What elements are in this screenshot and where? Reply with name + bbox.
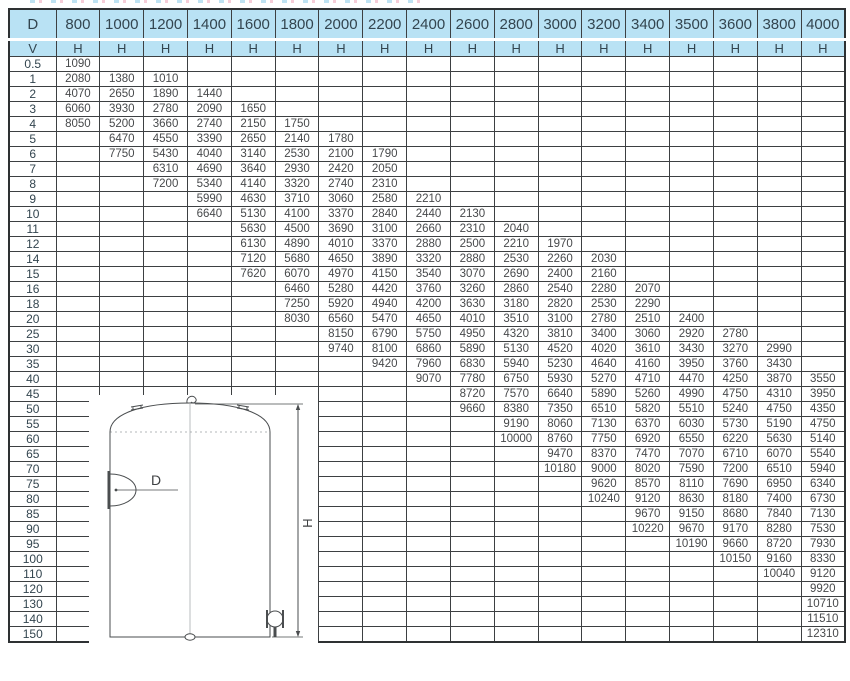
empty-cell bbox=[450, 147, 494, 162]
empty-cell bbox=[713, 87, 757, 102]
empty-cell bbox=[757, 327, 801, 342]
top-nozzle-left-icon bbox=[131, 405, 143, 410]
volume-label-cell: 1 bbox=[9, 72, 56, 87]
diameter-header-cell: 800 bbox=[56, 9, 100, 40]
height-value-cell: 6060 bbox=[56, 102, 100, 117]
empty-cell bbox=[670, 567, 714, 582]
height-value-cell: 7120 bbox=[231, 252, 275, 267]
empty-cell bbox=[538, 627, 582, 643]
height-value-cell: 4150 bbox=[363, 267, 407, 282]
diameter-header-cell: 4000 bbox=[801, 9, 845, 40]
volume-label-cell: 7 bbox=[9, 162, 56, 177]
height-value-cell: 6460 bbox=[275, 282, 319, 297]
volume-label-cell: 100 bbox=[9, 552, 56, 567]
empty-cell bbox=[670, 87, 714, 102]
height-value-cell: 3630 bbox=[450, 297, 494, 312]
empty-cell bbox=[538, 612, 582, 627]
table-row: 1261304890401033702880250022101970 bbox=[9, 237, 845, 252]
height-value-cell: 3810 bbox=[538, 327, 582, 342]
empty-cell bbox=[757, 207, 801, 222]
height-value-cell: 7400 bbox=[757, 492, 801, 507]
height-value-cell: 4940 bbox=[363, 297, 407, 312]
volume-label-cell: 50 bbox=[9, 402, 56, 417]
height-value-cell: 2030 bbox=[582, 252, 626, 267]
empty-cell bbox=[801, 282, 845, 297]
height-value-cell: 8030 bbox=[275, 312, 319, 327]
height-value-cell: 3610 bbox=[626, 342, 670, 357]
empty-cell bbox=[450, 177, 494, 192]
height-value-cell: 6830 bbox=[450, 357, 494, 372]
height-value-cell: 5190 bbox=[757, 417, 801, 432]
empty-cell bbox=[275, 102, 319, 117]
empty-cell bbox=[144, 252, 188, 267]
empty-cell bbox=[757, 102, 801, 117]
empty-cell bbox=[670, 162, 714, 177]
height-value-cell: 7530 bbox=[801, 522, 845, 537]
volume-label-cell: 110 bbox=[9, 567, 56, 582]
diameter-header-cell: 2400 bbox=[407, 9, 451, 40]
volume-label-cell: 2 bbox=[9, 87, 56, 102]
empty-cell bbox=[450, 582, 494, 597]
empty-cell bbox=[582, 57, 626, 72]
empty-cell bbox=[494, 87, 538, 102]
empty-cell bbox=[801, 207, 845, 222]
empty-cell bbox=[670, 552, 714, 567]
empty-cell bbox=[626, 597, 670, 612]
empty-cell bbox=[494, 627, 538, 643]
empty-cell bbox=[231, 297, 275, 312]
diameter-header-cell: 3800 bbox=[757, 9, 801, 40]
height-value-cell: 1750 bbox=[275, 117, 319, 132]
empty-cell bbox=[407, 477, 451, 492]
height-value-cell: 9120 bbox=[626, 492, 670, 507]
diameter-header-cell: 3000 bbox=[538, 9, 582, 40]
empty-cell bbox=[275, 357, 319, 372]
diameter-header-row: D800100012001400160018002000220024002600… bbox=[9, 9, 845, 40]
height-value-cell: 4970 bbox=[319, 267, 363, 282]
height-value-cell: 2530 bbox=[275, 147, 319, 162]
empty-cell bbox=[363, 537, 407, 552]
empty-cell bbox=[494, 522, 538, 537]
empty-cell bbox=[100, 342, 144, 357]
empty-cell bbox=[100, 192, 144, 207]
empty-cell bbox=[713, 582, 757, 597]
height-value-cell: 4350 bbox=[801, 402, 845, 417]
height-value-cell: 3060 bbox=[626, 327, 670, 342]
height-value-cell: 8110 bbox=[670, 477, 714, 492]
empty-cell bbox=[450, 477, 494, 492]
table-row: 15762060704970415035403070269024002160 bbox=[9, 267, 845, 282]
height-value-cell: 10040 bbox=[757, 567, 801, 582]
empty-cell bbox=[100, 222, 144, 237]
volume-label-cell: 45 bbox=[9, 387, 56, 402]
empty-cell bbox=[363, 582, 407, 597]
top-nozzle-right-icon bbox=[237, 405, 249, 410]
height-value-cell: 2580 bbox=[363, 192, 407, 207]
volume-label-cell: 65 bbox=[9, 447, 56, 462]
empty-cell bbox=[801, 357, 845, 372]
empty-cell bbox=[100, 177, 144, 192]
empty-cell bbox=[494, 507, 538, 522]
empty-cell bbox=[319, 537, 363, 552]
empty-cell bbox=[626, 222, 670, 237]
empty-cell bbox=[626, 612, 670, 627]
height-value-cell: 2310 bbox=[450, 222, 494, 237]
height-value-cell: 3930 bbox=[100, 102, 144, 117]
height-value-cell: 2740 bbox=[187, 117, 231, 132]
height-value-cell: 6730 bbox=[801, 492, 845, 507]
height-value-cell: 5200 bbox=[100, 117, 144, 132]
empty-cell bbox=[187, 72, 231, 87]
empty-cell bbox=[582, 87, 626, 102]
table-row: 360603930278020901650 bbox=[9, 102, 845, 117]
height-value-cell: 6130 bbox=[231, 237, 275, 252]
empty-cell bbox=[319, 87, 363, 102]
empty-cell bbox=[363, 612, 407, 627]
table-row: 106640513041003370284024402130 bbox=[9, 207, 845, 222]
h-unit-cell: H bbox=[187, 40, 231, 57]
empty-cell bbox=[450, 72, 494, 87]
empty-cell bbox=[582, 552, 626, 567]
empty-cell bbox=[713, 207, 757, 222]
empty-cell bbox=[582, 612, 626, 627]
height-value-cell: 2860 bbox=[494, 282, 538, 297]
volume-label-cell: 11 bbox=[9, 222, 56, 237]
tank-drawing-inset: D H bbox=[89, 395, 318, 656]
volume-label-cell: 40 bbox=[9, 372, 56, 387]
empty-cell bbox=[757, 297, 801, 312]
empty-cell bbox=[538, 567, 582, 582]
height-value-cell: 5140 bbox=[801, 432, 845, 447]
height-value-cell: 5270 bbox=[582, 372, 626, 387]
empty-cell bbox=[801, 87, 845, 102]
empty-cell bbox=[319, 432, 363, 447]
volume-label-cell: 130 bbox=[9, 597, 56, 612]
height-value-cell: 4010 bbox=[319, 237, 363, 252]
h-unit-cell: H bbox=[450, 40, 494, 57]
empty-cell bbox=[100, 312, 144, 327]
height-value-cell: 5730 bbox=[713, 417, 757, 432]
empty-cell bbox=[363, 462, 407, 477]
empty-cell bbox=[582, 567, 626, 582]
empty-cell bbox=[494, 612, 538, 627]
empty-cell bbox=[363, 567, 407, 582]
empty-cell bbox=[407, 117, 451, 132]
empty-cell bbox=[757, 627, 801, 643]
table-row: 9599046303710306025802210 bbox=[9, 192, 845, 207]
volume-label-cell: 10 bbox=[9, 207, 56, 222]
height-value-cell: 1790 bbox=[363, 147, 407, 162]
empty-cell bbox=[582, 162, 626, 177]
h-unit-cell: H bbox=[319, 40, 363, 57]
height-value-cell: 7620 bbox=[231, 267, 275, 282]
empty-cell bbox=[626, 192, 670, 207]
height-value-cell: 10000 bbox=[494, 432, 538, 447]
height-value-cell: 9000 bbox=[582, 462, 626, 477]
height-value-cell: 2820 bbox=[538, 297, 582, 312]
volume-label-cell: 25 bbox=[9, 327, 56, 342]
volume-label-cell: 140 bbox=[9, 612, 56, 627]
empty-cell bbox=[363, 132, 407, 147]
empty-cell bbox=[231, 342, 275, 357]
h-unit-cell: H bbox=[231, 40, 275, 57]
height-value-cell: 3550 bbox=[801, 372, 845, 387]
height-value-cell: 2530 bbox=[494, 252, 538, 267]
empty-cell bbox=[538, 597, 582, 612]
volume-label-cell: 3 bbox=[9, 102, 56, 117]
empty-cell bbox=[538, 492, 582, 507]
empty-cell bbox=[363, 597, 407, 612]
empty-cell bbox=[363, 387, 407, 402]
height-value-cell: 3320 bbox=[275, 177, 319, 192]
table-row: 24070265018901440 bbox=[9, 87, 845, 102]
empty-cell bbox=[407, 567, 451, 582]
empty-cell bbox=[757, 282, 801, 297]
height-value-cell: 10240 bbox=[582, 492, 626, 507]
empty-cell bbox=[319, 507, 363, 522]
empty-cell bbox=[494, 447, 538, 462]
height-value-cell: 7200 bbox=[713, 462, 757, 477]
empty-cell bbox=[582, 147, 626, 162]
empty-cell bbox=[450, 567, 494, 582]
height-value-cell: 7840 bbox=[757, 507, 801, 522]
table-row: 3097408100686058905130452040203610343032… bbox=[9, 342, 845, 357]
height-value-cell: 6790 bbox=[363, 327, 407, 342]
empty-cell bbox=[407, 102, 451, 117]
empty-cell bbox=[319, 387, 363, 402]
height-value-cell: 4630 bbox=[231, 192, 275, 207]
empty-cell bbox=[582, 597, 626, 612]
empty-cell bbox=[713, 567, 757, 582]
height-value-cell: 2880 bbox=[450, 252, 494, 267]
empty-cell bbox=[582, 582, 626, 597]
empty-cell bbox=[713, 237, 757, 252]
side-valve bbox=[267, 611, 283, 627]
diameter-header-cell: 3600 bbox=[713, 9, 757, 40]
empty-cell bbox=[231, 72, 275, 87]
empty-cell bbox=[538, 582, 582, 597]
height-value-cell: 6750 bbox=[494, 372, 538, 387]
empty-cell bbox=[319, 417, 363, 432]
empty-cell bbox=[407, 492, 451, 507]
empty-cell bbox=[626, 177, 670, 192]
empty-cell bbox=[670, 282, 714, 297]
empty-cell bbox=[801, 177, 845, 192]
empty-cell bbox=[801, 297, 845, 312]
height-value-cell: 9660 bbox=[450, 402, 494, 417]
empty-cell bbox=[407, 147, 451, 162]
height-value-cell: 2310 bbox=[363, 177, 407, 192]
height-value-cell: 1650 bbox=[231, 102, 275, 117]
height-value-cell: 2130 bbox=[450, 207, 494, 222]
diameter-header-cell: 3200 bbox=[582, 9, 626, 40]
empty-cell bbox=[100, 282, 144, 297]
height-value-cell: 8150 bbox=[319, 327, 363, 342]
empty-cell bbox=[319, 72, 363, 87]
empty-cell bbox=[713, 177, 757, 192]
empty-cell bbox=[801, 342, 845, 357]
height-value-cell: 2530 bbox=[582, 297, 626, 312]
empty-cell bbox=[187, 312, 231, 327]
empty-cell bbox=[494, 492, 538, 507]
empty-cell bbox=[538, 117, 582, 132]
h-unit-cell: H bbox=[144, 40, 188, 57]
height-value-cell: 9670 bbox=[670, 522, 714, 537]
height-value-cell: 5890 bbox=[450, 342, 494, 357]
empty-cell bbox=[231, 87, 275, 102]
height-value-cell: 5130 bbox=[231, 207, 275, 222]
empty-cell bbox=[56, 282, 100, 297]
empty-cell bbox=[801, 252, 845, 267]
empty-cell bbox=[275, 57, 319, 72]
volume-label-cell: 8 bbox=[9, 177, 56, 192]
height-value-cell: 2260 bbox=[538, 252, 582, 267]
empty-cell bbox=[626, 582, 670, 597]
empty-cell bbox=[713, 132, 757, 147]
height-value-cell: 6860 bbox=[407, 342, 451, 357]
height-value-cell: 1010 bbox=[144, 72, 188, 87]
empty-cell bbox=[231, 57, 275, 72]
empty-cell bbox=[538, 477, 582, 492]
empty-cell bbox=[407, 57, 451, 72]
empty-cell bbox=[801, 162, 845, 177]
empty-cell bbox=[363, 432, 407, 447]
empty-cell bbox=[407, 87, 451, 102]
height-value-cell: 3660 bbox=[144, 117, 188, 132]
height-value-cell: 4750 bbox=[757, 402, 801, 417]
empty-cell bbox=[363, 627, 407, 643]
empty-cell bbox=[582, 522, 626, 537]
table-row: 4090707780675059305270471044704250387035… bbox=[9, 372, 845, 387]
empty-cell bbox=[626, 207, 670, 222]
cropped-title-remnant bbox=[30, 0, 422, 3]
height-value-cell: 5430 bbox=[144, 147, 188, 162]
empty-cell bbox=[538, 192, 582, 207]
diameter-header-cell: 1800 bbox=[275, 9, 319, 40]
empty-cell bbox=[319, 582, 363, 597]
height-value-cell: 3950 bbox=[801, 387, 845, 402]
empty-cell bbox=[538, 162, 582, 177]
height-value-cell: 4310 bbox=[757, 387, 801, 402]
empty-cell bbox=[670, 102, 714, 117]
empty-cell bbox=[450, 57, 494, 72]
height-value-cell: 9420 bbox=[363, 357, 407, 372]
empty-cell bbox=[582, 102, 626, 117]
empty-cell bbox=[187, 327, 231, 342]
empty-cell bbox=[56, 252, 100, 267]
empty-cell bbox=[538, 207, 582, 222]
height-value-cell: 4690 bbox=[187, 162, 231, 177]
empty-cell bbox=[231, 327, 275, 342]
empty-cell bbox=[450, 117, 494, 132]
height-value-cell: 5890 bbox=[582, 387, 626, 402]
height-value-cell: 2780 bbox=[144, 102, 188, 117]
empty-cell bbox=[144, 327, 188, 342]
h-unit-cell: H bbox=[713, 40, 757, 57]
height-value-cell: 8330 bbox=[801, 552, 845, 567]
height-value-cell: 6070 bbox=[275, 267, 319, 282]
empty-cell bbox=[231, 357, 275, 372]
empty-cell bbox=[363, 372, 407, 387]
empty-cell bbox=[626, 87, 670, 102]
volume-label-cell: 95 bbox=[9, 537, 56, 552]
empty-cell bbox=[319, 402, 363, 417]
empty-cell bbox=[450, 102, 494, 117]
empty-cell bbox=[757, 57, 801, 72]
empty-cell bbox=[100, 267, 144, 282]
height-value-cell: 2050 bbox=[363, 162, 407, 177]
empty-cell bbox=[713, 267, 757, 282]
height-value-cell: 6560 bbox=[319, 312, 363, 327]
h-unit-cell: H bbox=[100, 40, 144, 57]
empty-cell bbox=[319, 357, 363, 372]
empty-cell bbox=[494, 597, 538, 612]
empty-cell bbox=[494, 132, 538, 147]
empty-cell bbox=[757, 162, 801, 177]
empty-cell bbox=[231, 372, 275, 387]
empty-cell bbox=[626, 57, 670, 72]
empty-cell bbox=[144, 372, 188, 387]
empty-cell bbox=[670, 117, 714, 132]
height-value-cell: 7470 bbox=[626, 447, 670, 462]
volume-label-cell: 85 bbox=[9, 507, 56, 522]
table-row: 18725059204940420036303180282025302290 bbox=[9, 297, 845, 312]
empty-cell bbox=[538, 147, 582, 162]
empty-cell bbox=[407, 522, 451, 537]
empty-cell bbox=[100, 252, 144, 267]
height-value-cell: 9150 bbox=[670, 507, 714, 522]
empty-cell bbox=[407, 72, 451, 87]
empty-cell bbox=[363, 552, 407, 567]
empty-cell bbox=[275, 87, 319, 102]
empty-cell bbox=[626, 117, 670, 132]
empty-cell bbox=[187, 222, 231, 237]
empty-cell bbox=[407, 177, 451, 192]
vent-icon bbox=[187, 396, 196, 403]
height-value-cell: 2740 bbox=[319, 177, 363, 192]
volume-label-cell: 15 bbox=[9, 267, 56, 282]
diameter-header-cell: 1400 bbox=[187, 9, 231, 40]
height-value-cell: 8760 bbox=[538, 432, 582, 447]
height-value-cell: 9120 bbox=[801, 567, 845, 582]
diameter-header-cell: 2000 bbox=[319, 9, 363, 40]
empty-cell bbox=[670, 297, 714, 312]
height-value-cell: 4650 bbox=[407, 312, 451, 327]
empty-cell bbox=[56, 327, 100, 342]
empty-cell bbox=[319, 627, 363, 643]
empty-cell bbox=[231, 282, 275, 297]
empty-cell bbox=[670, 177, 714, 192]
empty-cell bbox=[582, 72, 626, 87]
volume-label-cell: 16 bbox=[9, 282, 56, 297]
height-value-cell: 1090 bbox=[56, 57, 100, 72]
empty-cell bbox=[538, 102, 582, 117]
height-value-cell: 8180 bbox=[713, 492, 757, 507]
height-value-cell: 6310 bbox=[144, 162, 188, 177]
empty-cell bbox=[363, 492, 407, 507]
empty-cell bbox=[757, 582, 801, 597]
volume-label-cell: 150 bbox=[9, 627, 56, 643]
height-value-cell: 6030 bbox=[670, 417, 714, 432]
empty-cell bbox=[450, 552, 494, 567]
height-value-cell: 2780 bbox=[713, 327, 757, 342]
table-row: 0.51090 bbox=[9, 57, 845, 72]
height-value-cell: 5260 bbox=[626, 387, 670, 402]
empty-cell bbox=[670, 597, 714, 612]
height-value-cell: 2210 bbox=[494, 237, 538, 252]
empty-cell bbox=[363, 447, 407, 462]
empty-cell bbox=[757, 312, 801, 327]
